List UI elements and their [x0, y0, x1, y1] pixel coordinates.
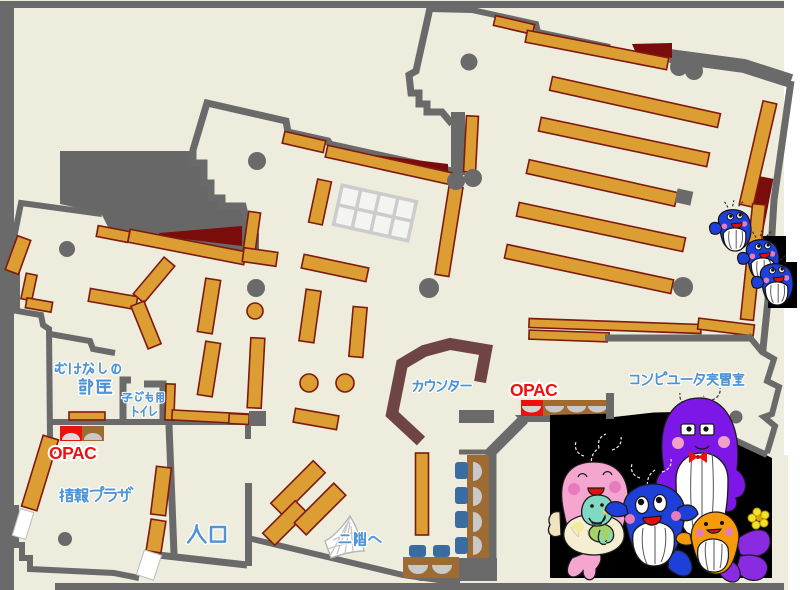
svg-text:OPAC: OPAC: [510, 380, 558, 400]
svg-text:OPAC: OPAC: [49, 443, 97, 463]
